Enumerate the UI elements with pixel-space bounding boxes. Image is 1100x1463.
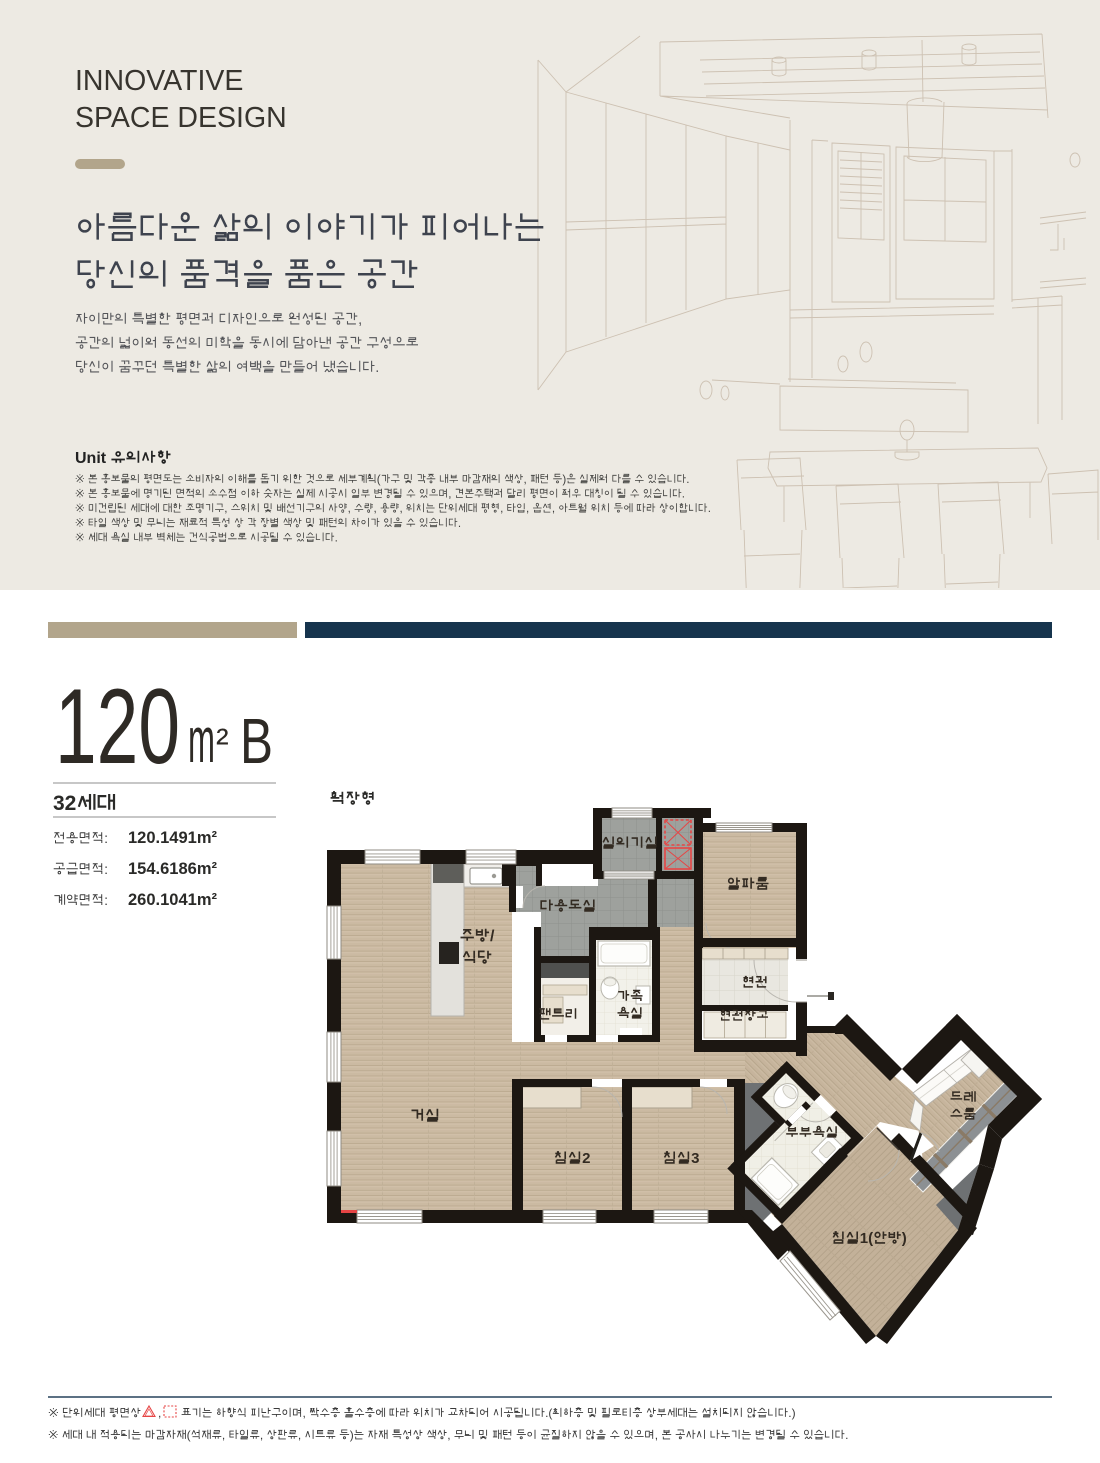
svg-text:120: 120 [55, 666, 180, 786]
svg-text:.: . [335, 531, 338, 544]
svg-text:): ) [562, 473, 566, 486]
svg-text:,: , [303, 1406, 306, 1420]
svg-text:2: 2 [582, 1150, 590, 1167]
svg-text:.(: .( [545, 1406, 552, 1420]
svg-text:): ) [350, 1428, 354, 1442]
svg-text::: : [104, 831, 108, 847]
svg-text:,: , [524, 473, 527, 486]
svg-text:): ) [902, 1230, 907, 1247]
svg-text:.): .) [788, 1406, 795, 1420]
svg-text:260.1041m²: 260.1041m² [128, 891, 217, 909]
svg-text:154.6186m²: 154.6186m² [128, 860, 217, 878]
svg-text:,: , [158, 1406, 161, 1420]
svg-text:.: . [375, 360, 379, 376]
svg-text:,: , [348, 502, 351, 515]
svg-text::: : [104, 862, 108, 878]
svg-text:m: m [188, 704, 215, 776]
svg-text:.: . [708, 502, 711, 515]
svg-text:,: , [358, 312, 362, 328]
svg-text:120.1491m²: 120.1491m² [128, 829, 217, 847]
svg-text:.: . [458, 517, 461, 530]
svg-text:,: , [400, 502, 403, 515]
svg-text:(: ( [377, 473, 381, 486]
svg-text:/: / [490, 928, 495, 945]
svg-text:Unit: Unit [75, 450, 107, 467]
svg-text:(: ( [187, 1428, 191, 1442]
svg-text:INNOVATIVE: INNOVATIVE [75, 65, 243, 97]
svg-text:,: , [374, 502, 377, 515]
svg-text:,: , [224, 502, 227, 515]
svg-text:,: , [298, 1428, 301, 1442]
svg-text:,: , [447, 1428, 450, 1442]
svg-text:3: 3 [691, 1150, 699, 1167]
svg-text:,: , [222, 1428, 225, 1442]
svg-text:,: , [526, 502, 529, 515]
svg-text:,: , [260, 1428, 263, 1442]
svg-text:,: , [500, 502, 503, 515]
svg-text:.: . [686, 473, 689, 486]
svg-text:1(: 1( [860, 1230, 873, 1247]
svg-text:32: 32 [53, 792, 76, 815]
svg-text:,: , [655, 1428, 658, 1442]
svg-text:.: . [845, 1428, 848, 1442]
svg-text:,: , [448, 488, 451, 501]
svg-text:²: ² [216, 722, 229, 764]
svg-text::: : [104, 893, 108, 909]
svg-text:B: B [240, 705, 273, 777]
svg-text:.: . [682, 488, 685, 501]
svg-text:,: , [552, 502, 555, 515]
svg-text:SPACE DESIGN: SPACE DESIGN [75, 102, 287, 134]
